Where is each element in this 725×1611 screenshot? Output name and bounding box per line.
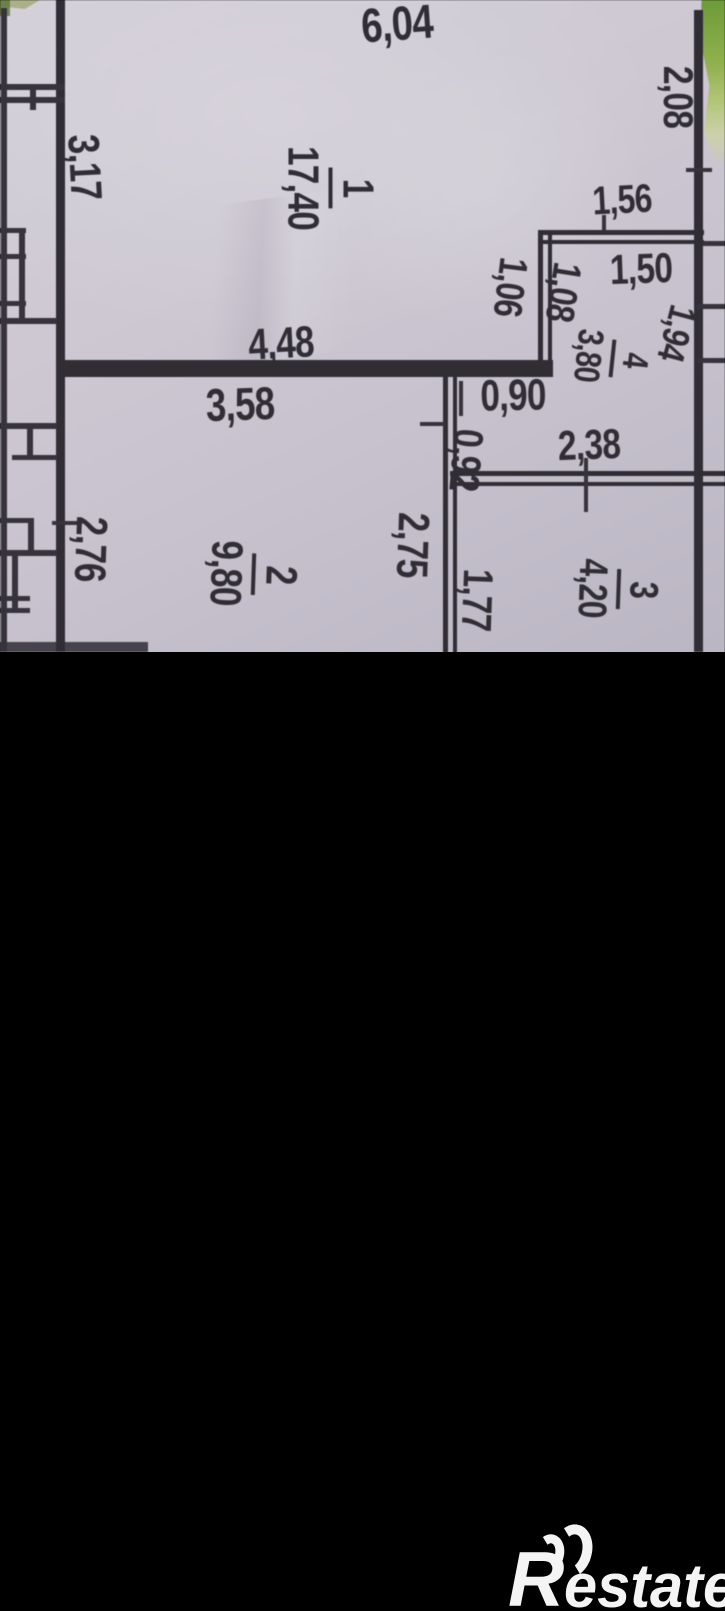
wall-stub — [697, 304, 725, 309]
window-line — [0, 596, 30, 601]
floor-plan-photo: 6,04 2,08 3,17 1,56 1,50 1,06 1,08 1,94 … — [0, 0, 725, 653]
window-line — [0, 254, 26, 259]
dimension-label: 2,08 — [657, 66, 699, 128]
window-line — [0, 301, 26, 306]
room-label-3: 3 4,20 — [571, 558, 664, 620]
window-line — [0, 608, 30, 613]
watermark-initial: R — [508, 1540, 564, 1611]
window-line — [30, 84, 36, 110]
dimension-label: 2,38 — [557, 423, 621, 467]
dimension-tick — [686, 168, 712, 172]
dimension-label: 1,56 — [591, 178, 652, 221]
window-line — [12, 550, 18, 612]
dimension-label: 3,58 — [205, 380, 275, 428]
room-area: 17,40 — [281, 146, 329, 230]
dimension-label: 1,50 — [609, 247, 673, 291]
letterbox-background — [0, 652, 725, 1611]
room-label-1: 1 17,40 — [281, 146, 380, 230]
window-line — [28, 518, 34, 554]
room-number: 3 — [616, 569, 664, 610]
window-line — [0, 518, 30, 523]
dimension-tick — [420, 422, 446, 426]
wall-stub — [703, 241, 725, 246]
dimension-label: 6,04 — [360, 0, 435, 51]
dimension-label: 0,92 — [442, 427, 489, 493]
window-line — [0, 318, 57, 324]
dimension-label: 1,77 — [455, 568, 499, 632]
room-area: 3,80 — [568, 327, 613, 384]
room-number: 4 — [609, 339, 656, 381]
wall-stub — [697, 358, 725, 363]
watermark-text: estate — [564, 1556, 725, 1611]
wall-room4-top — [538, 230, 704, 244]
dimension-label: 1,08 — [539, 260, 588, 325]
window-line — [19, 228, 25, 322]
restate-watermark: R estate — [500, 1522, 725, 1611]
paper-edge-smudge — [0, 642, 148, 652]
room-number: 1 — [329, 167, 380, 208]
dimension-label: 1,06 — [487, 255, 534, 319]
screenshot-stage: 6,04 2,08 3,17 1,56 1,50 1,06 1,08 1,94 … — [0, 0, 725, 1611]
room-label-4: 4 3,80 — [568, 327, 656, 388]
window-line — [0, 550, 57, 556]
dimension-label: 0,90 — [480, 373, 546, 418]
dimension-label: 2,75 — [389, 512, 435, 579]
dimension-label: 3,17 — [60, 133, 107, 201]
dimension-tick — [459, 381, 463, 416]
room-area: 9,80 — [202, 540, 252, 607]
room-number: 2 — [251, 553, 303, 596]
dimension-label: 4,48 — [247, 320, 315, 367]
room-label-2: 2 9,80 — [202, 540, 303, 609]
dimension-label: 2,76 — [67, 516, 113, 583]
room-area: 4,20 — [571, 558, 617, 619]
window-line — [12, 455, 57, 460]
